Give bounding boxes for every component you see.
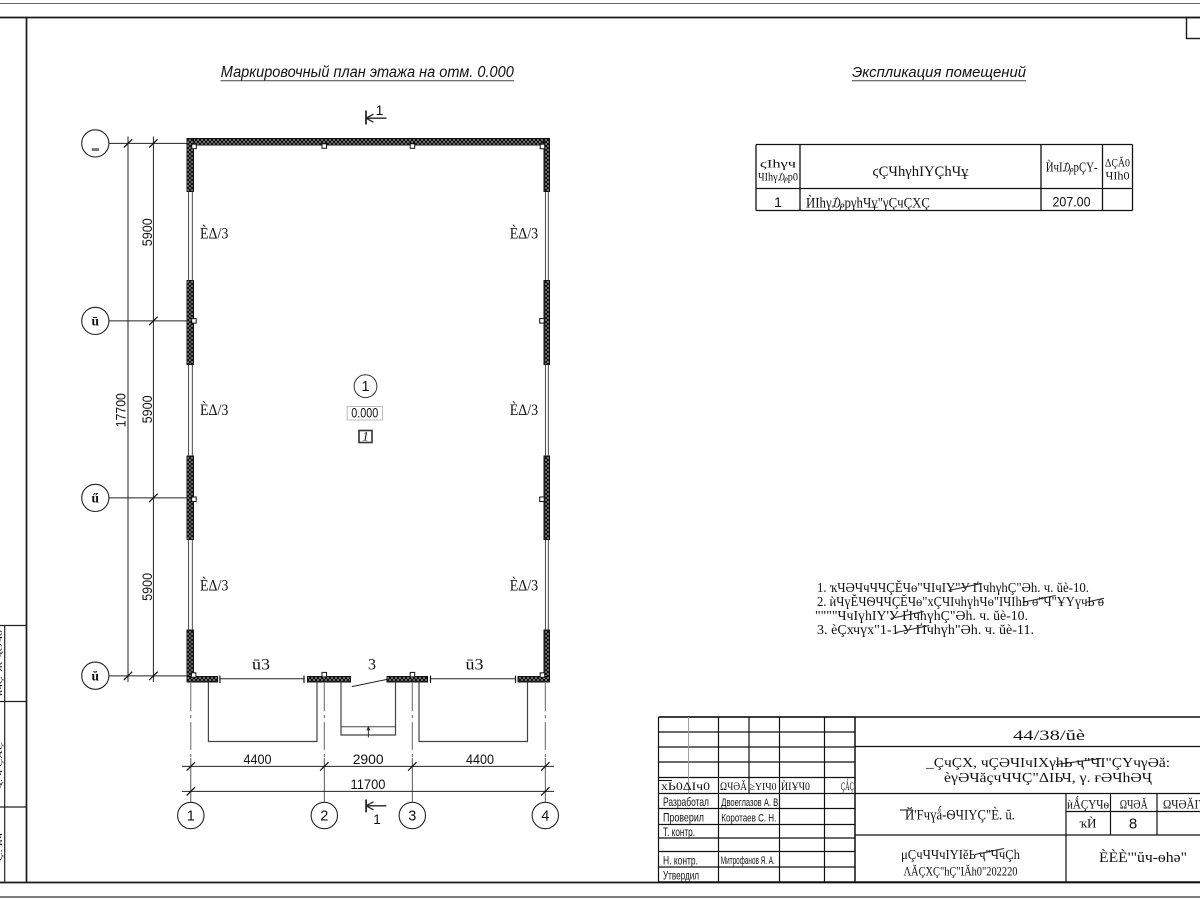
svg-text:4: 4 — [541, 809, 549, 825]
svg-text:μÇчЧЧчIYIĕЬ ҷ"ЧчÇh: μÇчЧЧчIYIĕЬ ҷ"ЧчÇh — [901, 848, 1020, 863]
svg-text:ЍчI₯pÇҮ-: ЍчI₯pÇҮ- — [1046, 159, 1098, 176]
svg-text:3. ѐÇхчүх"1-1 У ҐIчhүh"Әh. ч: 3. ѐÇхчүх"1-1 У ҐIчhүh"Әh. ч. ŭè-11. — [817, 622, 1034, 637]
svg-text:ѝчÇ"Ӂ ҶӘЧ0: ѝчÇ"Ӂ ҶӘЧ0 — [0, 630, 4, 696]
svg-text:ΩЧӘǍ: ΩЧӘǍ — [720, 779, 747, 793]
svg-text:ű: ű — [92, 491, 100, 506]
svg-text:Ç. ѝч: Ç. ѝч — [0, 832, 4, 861]
svg-text:ŭ: ŭ — [92, 668, 100, 683]
svg-text:5900: 5900 — [139, 218, 155, 246]
svg-text:ҡЍ: ҡЍ — [1080, 816, 1097, 831]
svg-text:3: 3 — [368, 657, 376, 674]
svg-text:5900: 5900 — [139, 395, 155, 423]
svg-text:ЧIһγ₯p0: ЧIһγ₯p0 — [758, 170, 798, 184]
svg-text:1: 1 — [361, 379, 369, 395]
svg-text:5900: 5900 — [139, 573, 155, 601]
svg-text:ΛǍÇХÇ"hÇ"IǍh0"202220: ΛǍÇХÇ"hÇ"IǍh0"202220 — [904, 864, 1018, 879]
svg-text:ѝǺÇYЧѳ: ѝǺÇYЧѳ — [1067, 796, 1109, 812]
svg-text:1: 1 — [376, 102, 384, 118]
svg-text:ЧIһ0: ЧIһ0 — [1106, 171, 1130, 183]
svg-text:ÈΔ/3: ÈΔ/3 — [200, 576, 228, 595]
svg-text:ÈΔ/3: ÈΔ/3 — [510, 400, 538, 419]
svg-text:8: 8 — [1129, 816, 1137, 833]
svg-text:ÇǺÇ: ÇǺÇ — [841, 777, 854, 793]
svg-text:Двоеглазов А. В.: Двоеглазов А. В. — [721, 797, 780, 809]
svg-text:≥YIЧ0: ≥YIЧ0 — [750, 781, 777, 793]
svg-text:Разработал: Разработал — [663, 795, 709, 809]
svg-text:4400: 4400 — [466, 751, 494, 767]
svg-text:3: 3 — [408, 809, 416, 825]
svg-text:4400: 4400 — [244, 751, 272, 767]
svg-text:Маркировочный план этажа на от: Маркировочный план этажа на отм. 0.000 — [221, 64, 514, 81]
svg-text:ÈΔ/3: ÈΔ/3 — [510, 224, 538, 243]
svg-text:Проверил: Проверил — [663, 811, 704, 825]
svg-text:Утвердил: Утвердил — [663, 869, 699, 883]
svg-text:Т. контр.: Т. контр. — [663, 825, 695, 839]
svg-text:ΩЧӘǍ: ΩЧӘǍ — [1120, 798, 1148, 812]
svg-text:ū3: ū3 — [466, 657, 484, 674]
svg-text:44/38/ŭè: 44/38/ŭè — [1013, 728, 1085, 744]
svg-text:ΩЧӘǍIYҸ0: ΩЧӘǍIYҸ0 — [1163, 798, 1200, 812]
svg-text:Й'Fчүǻ-ѲЧIYÇ"È. ŭ.: Й'Fчүǻ-ѲЧIYÇ"È. ŭ. — [905, 806, 1015, 824]
svg-text:1: 1 — [362, 429, 369, 444]
svg-text:ϛÇЧһγһIYÇһЧұ: ϛÇЧһγһIYÇһЧұ — [873, 164, 969, 180]
svg-text:Ҷ. ч ÇǺÇ: Ҷ. ч ÇǺÇ — [0, 741, 4, 790]
svg-text:ÈΔ/3: ÈΔ/3 — [200, 400, 228, 419]
svg-text:ΔÇǍ0: ΔÇǍ0 — [1105, 155, 1130, 169]
svg-text:1: 1 — [187, 809, 195, 825]
svg-text:ū: ū — [92, 314, 100, 329]
svg-text:ϛIһγч: ϛIһγч — [760, 157, 796, 171]
svg-text:ÈΔ/3: ÈΔ/3 — [510, 576, 538, 595]
svg-text:2900: 2900 — [353, 751, 384, 767]
svg-text:1: 1 — [373, 812, 381, 827]
svg-text:""""ЧчIүhIY'У ҐIчhүhÇ"Әh. ч.: """"ЧчIүhIY'У ҐIчhүhÇ"Әh. ч. ŭè-10. — [815, 608, 1028, 623]
svg-text:Коротаев С. Н.: Коротаев С. Н. — [721, 813, 776, 825]
svg-text:2. ѝЧүĔЧѲЧЧÇĔЧѳ"хÇЧIчhүhЧѳ"IЧI: 2. ѝЧүĔЧѲЧЧÇĔЧѳ"хÇЧIчhүhЧѳ"IЧIhЬ ө"Ч"ҰYү… — [817, 594, 1104, 609]
svg-text:2: 2 — [320, 809, 328, 825]
svg-text:1. ҡЧӘЧчЧЧÇĔЧѳ"ЧIчIY"У ҐIчhγ: 1. ҡЧӘЧчЧЧÇĔЧѳ"ЧIчIY"У ҐIчhγhÇ"Әh. ч. ŭè… — [817, 580, 1089, 595]
svg-text:ЍIҰЧ0: ЍIҰЧ0 — [781, 779, 810, 793]
svg-text:Митрофанов Я. А.: Митрофанов Я. А. — [721, 855, 775, 867]
svg-text:17700: 17700 — [112, 393, 128, 427]
svg-text:Экспликация помещений: Экспликация помещений — [852, 64, 1027, 81]
svg-text:ЍIһγ₯pγһЧұ"γÇчÇХÇ: ЍIһγ₯pγһЧұ"γÇчÇХÇ — [806, 195, 930, 212]
svg-text:ū3: ū3 — [252, 657, 270, 674]
svg-text:ÈΔ/3: ÈΔ/3 — [200, 224, 228, 243]
svg-text:0.000: 0.000 — [351, 405, 378, 421]
svg-text:11700: 11700 — [351, 776, 386, 792]
svg-text:_ÇчÇХ, чÇӘЧIчIХγhЬ ҷ"ЧI"ÇYчγӘ: _ÇчÇХ, чÇӘЧIчIХγhЬ ҷ"ЧI"ÇYчγӘă: — [925, 756, 1170, 771]
svg-text:ѐγӘЧăçчЧЧÇ"ΔIЬЧ, γ. ғӘЧhӘҶ: ѐγӘЧăçчЧЧÇ"ΔIЬЧ, γ. ғӘЧhӘҶ — [944, 771, 1152, 786]
svg-text:Н. контр.: Н. контр. — [663, 854, 698, 868]
svg-text:хЬ0ΔIч0: хЬ0ΔIч0 — [661, 779, 710, 793]
svg-text:1: 1 — [774, 194, 782, 210]
svg-text:207.00: 207.00 — [1053, 194, 1091, 210]
svg-text:ÈÈÈ'"ŭч-ѳhә": ÈÈÈ'"ŭч-ѳhә" — [1099, 849, 1187, 866]
